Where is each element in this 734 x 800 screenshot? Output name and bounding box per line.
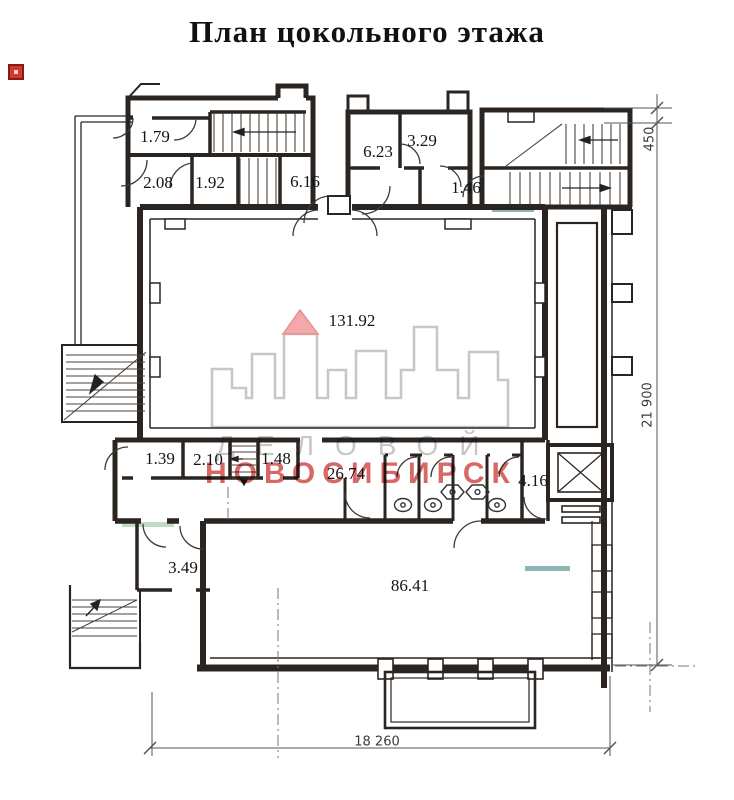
section-lines <box>228 487 695 758</box>
stairs-top-left-lower <box>240 158 276 204</box>
walls <box>62 84 632 728</box>
floor-plan-drawing <box>0 0 734 800</box>
toilet-icon <box>425 499 442 512</box>
stairs-left-areaway <box>66 355 145 411</box>
central-stair-arrowhead <box>240 478 248 485</box>
entrance-pit <box>385 672 535 728</box>
bottom-left-areaway <box>70 585 140 668</box>
floor-plan-page: План цокольного этажа <box>0 0 734 800</box>
sanitary-fixtures <box>395 485 506 512</box>
toilet-icon <box>489 499 506 512</box>
stairs-top-right-upper <box>566 124 620 164</box>
skyline-roof-triangle-icon <box>283 310 318 334</box>
watermark-skyline-logo <box>212 310 508 427</box>
stairs-central-small <box>232 446 256 478</box>
toilet-icon <box>395 499 412 512</box>
dimension-lines <box>144 94 672 756</box>
